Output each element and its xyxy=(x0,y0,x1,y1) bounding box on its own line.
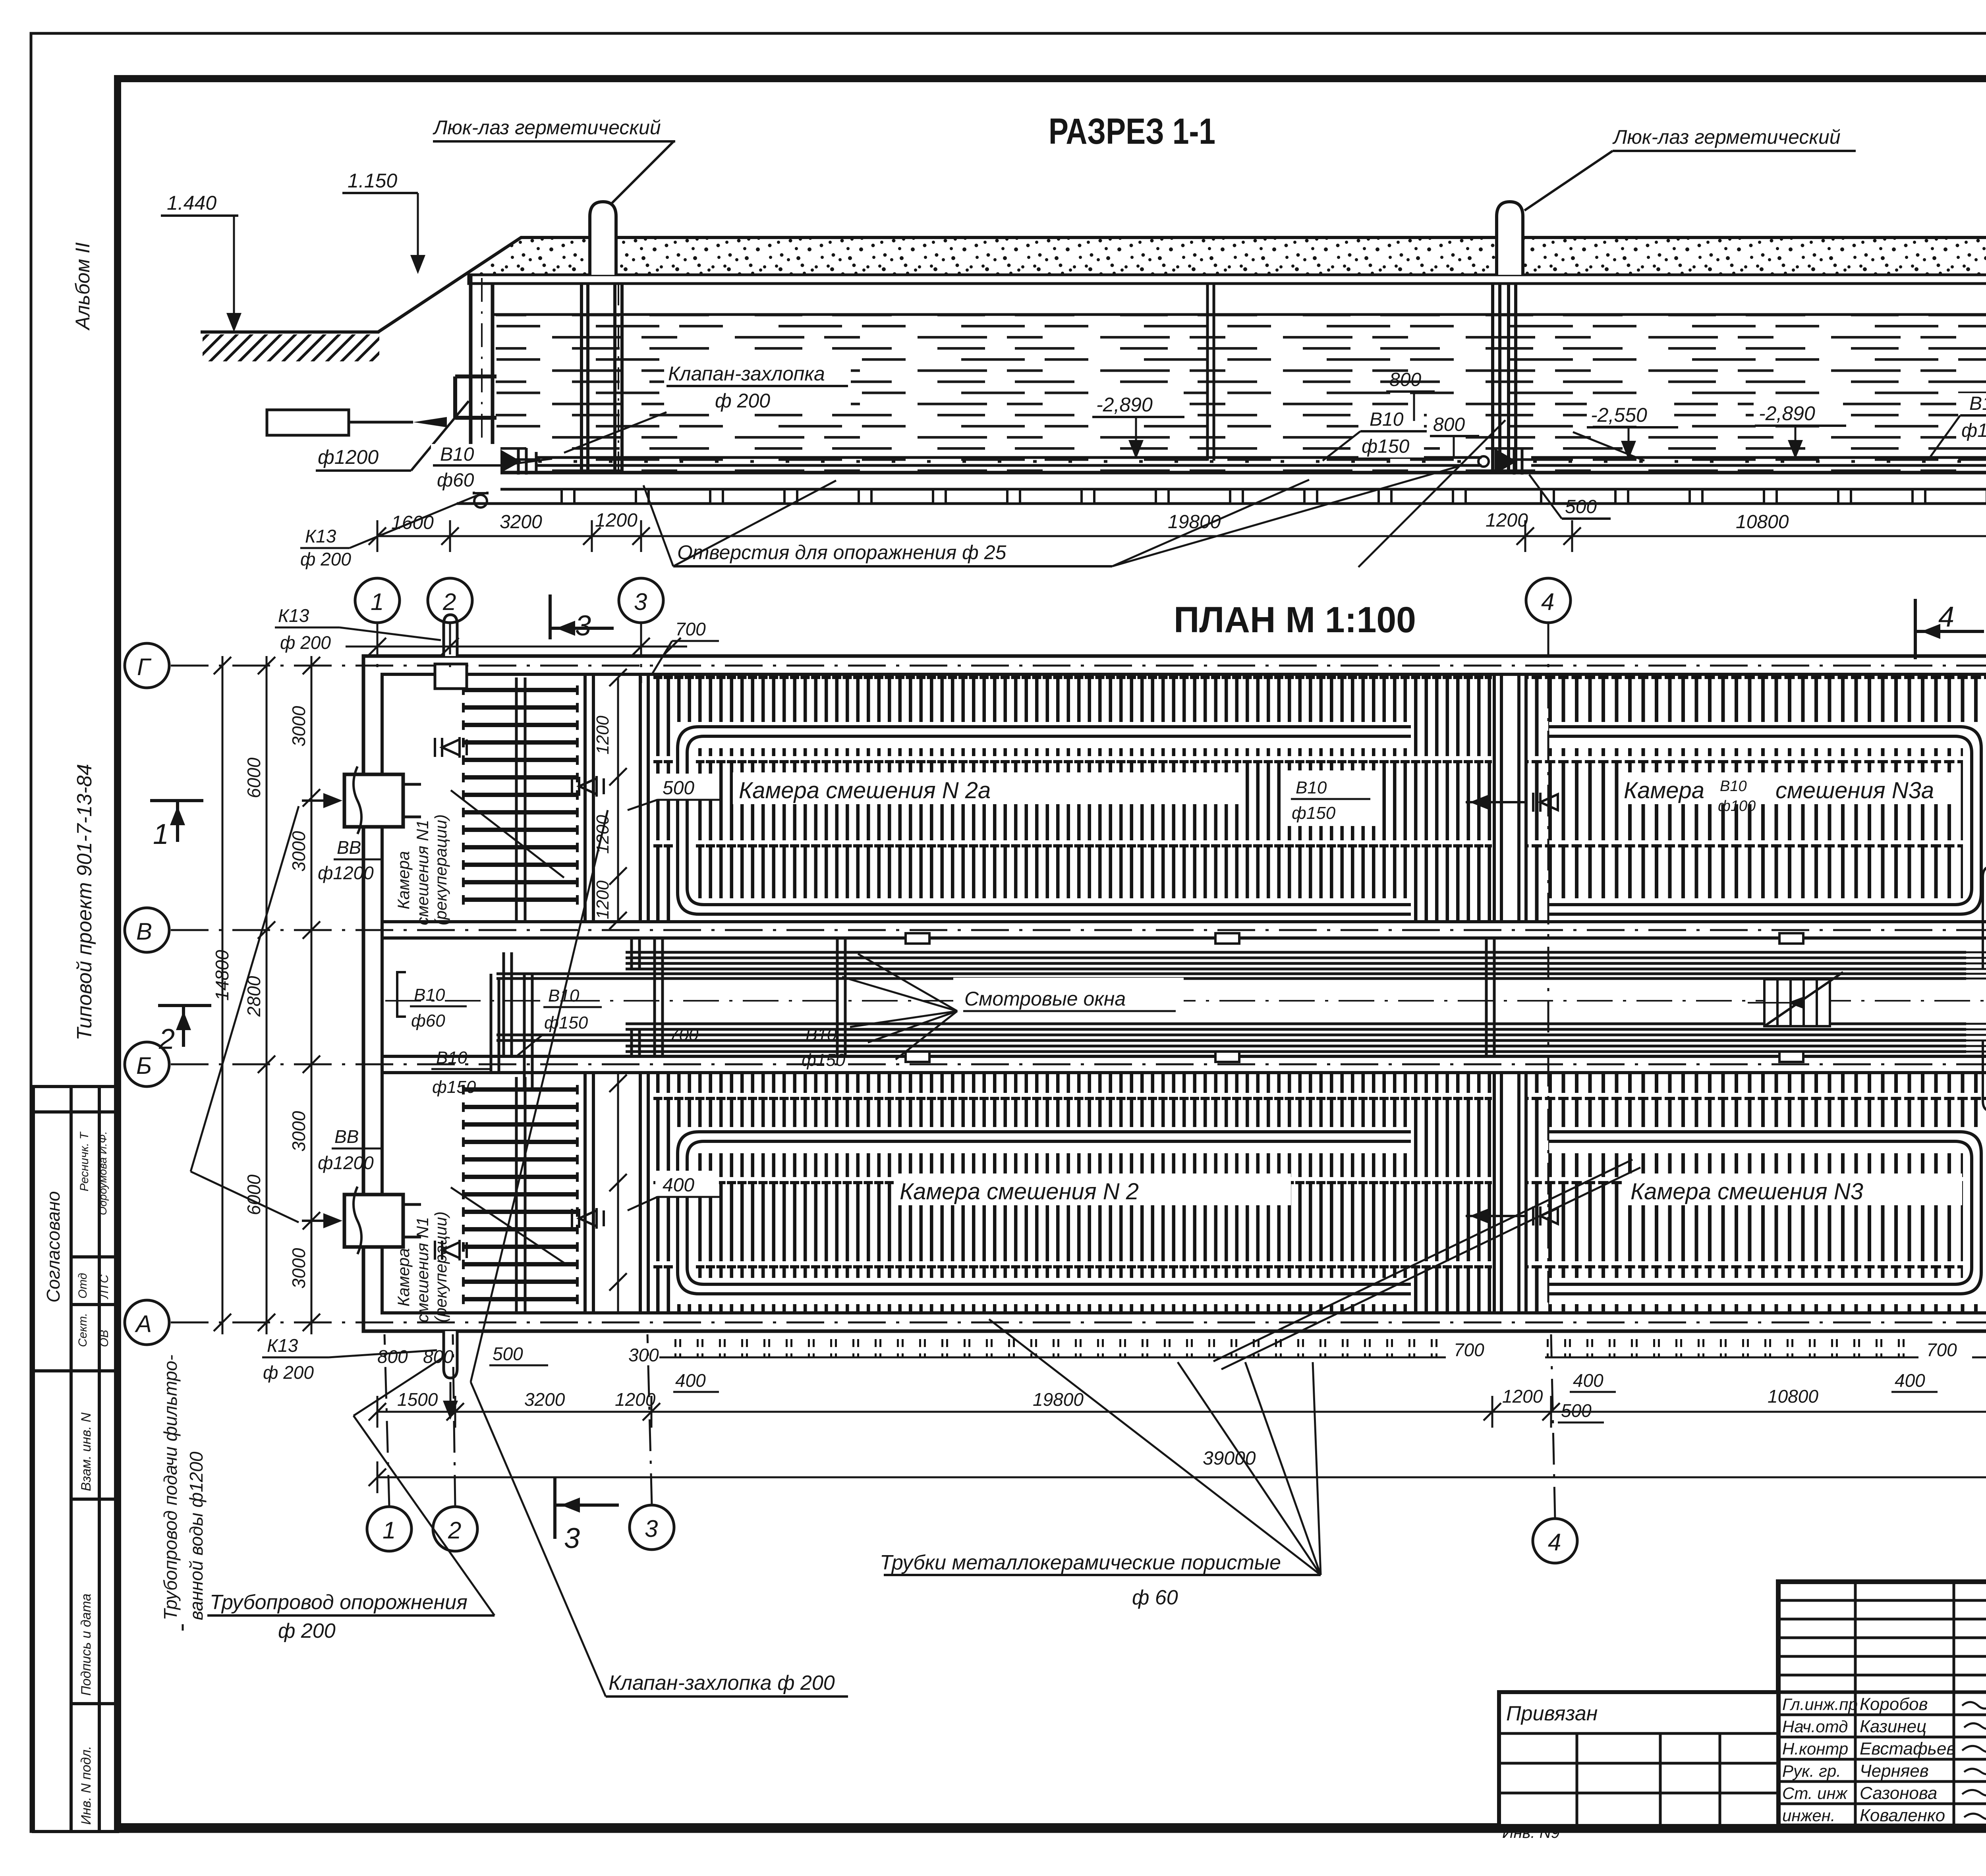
svg-text:инжен.: инжен. xyxy=(1782,1806,1835,1825)
svg-text:Б: Б xyxy=(136,1052,152,1079)
svg-text:2: 2 xyxy=(448,1517,461,1544)
svg-text:500: 500 xyxy=(663,778,694,799)
svg-text:3: 3 xyxy=(575,610,591,642)
svg-text:В10: В10 xyxy=(440,444,474,465)
svg-text:ЛТС: ЛТС xyxy=(98,1274,111,1299)
svg-text:1500: 1500 xyxy=(397,1389,438,1410)
svg-text:2: 2 xyxy=(442,589,456,615)
svg-text:ф 200: ф 200 xyxy=(263,1362,314,1383)
svg-text:6000: 6000 xyxy=(243,757,264,798)
svg-text:2: 2 xyxy=(158,1023,175,1055)
svg-text:Коваленко: Коваленко xyxy=(1860,1806,1945,1825)
svg-text:К13: К13 xyxy=(278,605,309,626)
svg-text:4: 4 xyxy=(1548,1529,1561,1556)
svg-text:700: 700 xyxy=(1926,1339,1957,1360)
svg-text:800: 800 xyxy=(1389,369,1421,390)
svg-text:Трубопровод подачи фильтро-: Трубопровод подачи фильтро- xyxy=(160,1355,181,1620)
svg-text:ф 200: ф 200 xyxy=(300,549,351,569)
svg-text:Н.контр: Н.контр xyxy=(1782,1739,1848,1758)
svg-text:400: 400 xyxy=(663,1175,694,1196)
svg-text:Камера: Камера xyxy=(1624,778,1704,803)
svg-text:ф150: ф150 xyxy=(802,1050,846,1070)
svg-text:Гл.инж.пр: Гл.инж.пр xyxy=(1782,1695,1858,1714)
svg-text:Привязан: Привязан xyxy=(1506,1702,1598,1725)
svg-text:700: 700 xyxy=(669,1025,699,1044)
svg-text:В10: В10 xyxy=(1296,778,1327,797)
svg-text:ВВ: ВВ xyxy=(334,1126,359,1147)
svg-text:Казинец: Казинец xyxy=(1860,1717,1926,1736)
svg-text:ПЛАН М 1:100: ПЛАН М 1:100 xyxy=(1174,600,1416,640)
svg-text:1200: 1200 xyxy=(593,716,612,755)
svg-text:800: 800 xyxy=(377,1346,408,1367)
svg-text:3000: 3000 xyxy=(288,831,309,872)
svg-text:500: 500 xyxy=(1565,496,1597,517)
svg-text:1200: 1200 xyxy=(595,510,638,531)
svg-text:ф 200: ф 200 xyxy=(278,1619,336,1642)
svg-text:ф100: ф100 xyxy=(1718,798,1756,814)
svg-text:Ст. инж: Ст. инж xyxy=(1782,1784,1848,1803)
svg-text:ф1200: ф1200 xyxy=(318,863,374,883)
svg-text:ф150: ф150 xyxy=(432,1077,476,1097)
svg-text:1200: 1200 xyxy=(615,1389,656,1410)
svg-text:ф60: ф60 xyxy=(437,470,474,491)
svg-text:Взам. инв. N: Взам. инв. N xyxy=(79,1413,94,1491)
svg-text:Смотровые окна: Смотровые окна xyxy=(964,988,1126,1010)
svg-text:800: 800 xyxy=(423,1346,454,1367)
svg-text:14800: 14800 xyxy=(212,950,232,1001)
svg-text:4: 4 xyxy=(1541,589,1554,615)
svg-text:К13: К13 xyxy=(305,526,336,546)
svg-text:Типовой проект 901-7-13-84: Типовой проект 901-7-13-84 xyxy=(73,764,96,1040)
svg-text:Отверстия для опоражнения: Отверстия для опоражнения ф 25 xyxy=(677,541,1007,564)
svg-text:1: 1 xyxy=(153,818,169,850)
svg-text:Инв. N9: Инв. N9 xyxy=(1502,1824,1560,1841)
svg-text:10800: 10800 xyxy=(1736,511,1789,533)
svg-text:1200: 1200 xyxy=(1486,510,1528,531)
svg-text:400: 400 xyxy=(1573,1370,1603,1391)
svg-text:К13: К13 xyxy=(267,1335,298,1356)
svg-text:Люк-лаз герметический: Люк-лаз герметический xyxy=(433,116,661,139)
svg-text:Камера: Камера xyxy=(394,1248,413,1307)
svg-text:смешения N1: смешения N1 xyxy=(413,1217,432,1322)
svg-text:3: 3 xyxy=(564,1523,580,1554)
svg-text:(рекуперации): (рекуперации) xyxy=(431,1212,450,1322)
svg-text:-2,550: -2,550 xyxy=(1591,404,1647,426)
svg-text:Г: Г xyxy=(137,654,152,680)
svg-text:Камера смешения N 2: Камера смешения N 2 xyxy=(900,1179,1139,1204)
svg-text:Рук. гр.: Рук. гр. xyxy=(1782,1762,1841,1780)
svg-text:Одроумова И.Ф.: Одроумова И.Ф. xyxy=(97,1131,109,1215)
svg-text:3: 3 xyxy=(645,1515,658,1542)
svg-text:Люк-лаз герметический: Люк-лаз герметический xyxy=(1612,126,1841,148)
svg-text:3: 3 xyxy=(634,589,647,615)
svg-text:А: А xyxy=(135,1310,152,1337)
svg-text:10800: 10800 xyxy=(1768,1386,1818,1407)
svg-text:Ресничк. Т: Ресничк. Т xyxy=(78,1131,91,1191)
svg-text:В10: В10 xyxy=(414,985,445,1005)
svg-text:Нач.отд: Нач.отд xyxy=(1782,1717,1848,1736)
svg-text:-2,890: -2,890 xyxy=(1759,402,1815,425)
svg-text:500: 500 xyxy=(1561,1400,1592,1421)
svg-text:ф 60: ф 60 xyxy=(1132,1586,1178,1609)
svg-text:Трубки металлокерамические пор: Трубки металлокерамические пористые xyxy=(880,1551,1281,1574)
svg-text:400: 400 xyxy=(1895,1370,1925,1391)
svg-text:ванной воды ф1200: ванной воды ф1200 xyxy=(186,1451,207,1620)
svg-text:1600: 1600 xyxy=(391,512,434,533)
svg-text:1.150: 1.150 xyxy=(348,170,397,192)
svg-text:1: 1 xyxy=(371,589,384,615)
svg-text:В10: В10 xyxy=(1969,393,1986,414)
svg-text:3000: 3000 xyxy=(288,706,309,747)
svg-text:400: 400 xyxy=(675,1370,706,1391)
svg-text:4: 4 xyxy=(1938,601,1954,633)
svg-text:1200: 1200 xyxy=(593,880,612,919)
svg-text:500: 500 xyxy=(493,1343,523,1364)
svg-text:-2,890: -2,890 xyxy=(1096,394,1153,416)
svg-text:1.440: 1.440 xyxy=(167,192,216,214)
svg-text:В10: В10 xyxy=(436,1048,468,1067)
svg-text:В10: В10 xyxy=(1370,409,1404,430)
svg-text:800: 800 xyxy=(1433,414,1465,435)
svg-text:Отд: Отд xyxy=(76,1273,89,1299)
svg-text:смешения N3а: смешения N3а xyxy=(1775,778,1934,803)
svg-text:3200: 3200 xyxy=(500,511,542,533)
svg-text:РАЗРЕЗ 1-1: РАЗРЕЗ 1-1 xyxy=(1049,111,1215,152)
svg-text:В10: В10 xyxy=(1720,778,1747,795)
svg-text:Сект.: Сект. xyxy=(76,1313,89,1347)
svg-text:19800: 19800 xyxy=(1033,1389,1084,1410)
svg-text:Альбом II: Альбом II xyxy=(71,242,94,331)
svg-text:(рекуперации): (рекуперации) xyxy=(431,814,450,925)
svg-text:Подпись и дата: Подпись и дата xyxy=(79,1594,94,1696)
svg-text:3200: 3200 xyxy=(524,1389,565,1410)
svg-text:Евстафьев: Евстафьев xyxy=(1860,1739,1955,1758)
svg-text:Сазонова: Сазонова xyxy=(1860,1783,1937,1803)
svg-text:ф 200: ф 200 xyxy=(280,632,331,653)
svg-text:Черняев: Черняев xyxy=(1860,1761,1929,1781)
svg-text:1: 1 xyxy=(383,1517,396,1544)
svg-text:300: 300 xyxy=(628,1345,659,1365)
svg-text:ВВ: ВВ xyxy=(337,837,361,858)
svg-text:Камера: Камера xyxy=(394,851,413,909)
svg-text:ф150: ф150 xyxy=(1362,436,1409,457)
svg-text:ф150: ф150 xyxy=(544,1013,588,1033)
svg-text:Инв. N подл.: Инв. N подл. xyxy=(79,1746,94,1825)
svg-text:В: В xyxy=(136,918,152,945)
svg-text:Коробов: Коробов xyxy=(1860,1695,1928,1714)
svg-text:Клапан-захлопка: Клапан-захлопка xyxy=(668,363,825,385)
svg-text:ф1200: ф1200 xyxy=(318,446,379,468)
svg-text:ф100: ф100 xyxy=(1961,420,1986,441)
svg-text:Камера смешения N 2а: Камера смешения N 2а xyxy=(739,778,991,803)
svg-text:ф60: ф60 xyxy=(411,1011,445,1031)
svg-text:700: 700 xyxy=(675,619,706,639)
svg-text:3000: 3000 xyxy=(288,1111,309,1152)
svg-text:Трубопровод опорожнения: Трубопровод опорожнения xyxy=(210,1591,468,1614)
svg-text:700: 700 xyxy=(1454,1339,1484,1360)
svg-text:Камера смешения N3: Камера смешения N3 xyxy=(1631,1179,1863,1204)
svg-text:Клапан-захлопка ф 200: Клапан-захлопка ф 200 xyxy=(609,1671,835,1695)
svg-text:Согласовано: Согласовано xyxy=(43,1191,64,1303)
svg-text:смешения N1: смешения N1 xyxy=(413,820,432,925)
svg-text:6000: 6000 xyxy=(243,1174,264,1215)
svg-text:ф150: ф150 xyxy=(1292,803,1336,823)
svg-text:В10: В10 xyxy=(806,1025,837,1044)
svg-text:3000: 3000 xyxy=(288,1248,309,1289)
svg-text:ф1200: ф1200 xyxy=(318,1152,374,1173)
svg-text:ф 200: ф 200 xyxy=(715,390,770,412)
svg-text:1200: 1200 xyxy=(1502,1386,1543,1407)
svg-text:ОВ: ОВ xyxy=(98,1330,111,1347)
